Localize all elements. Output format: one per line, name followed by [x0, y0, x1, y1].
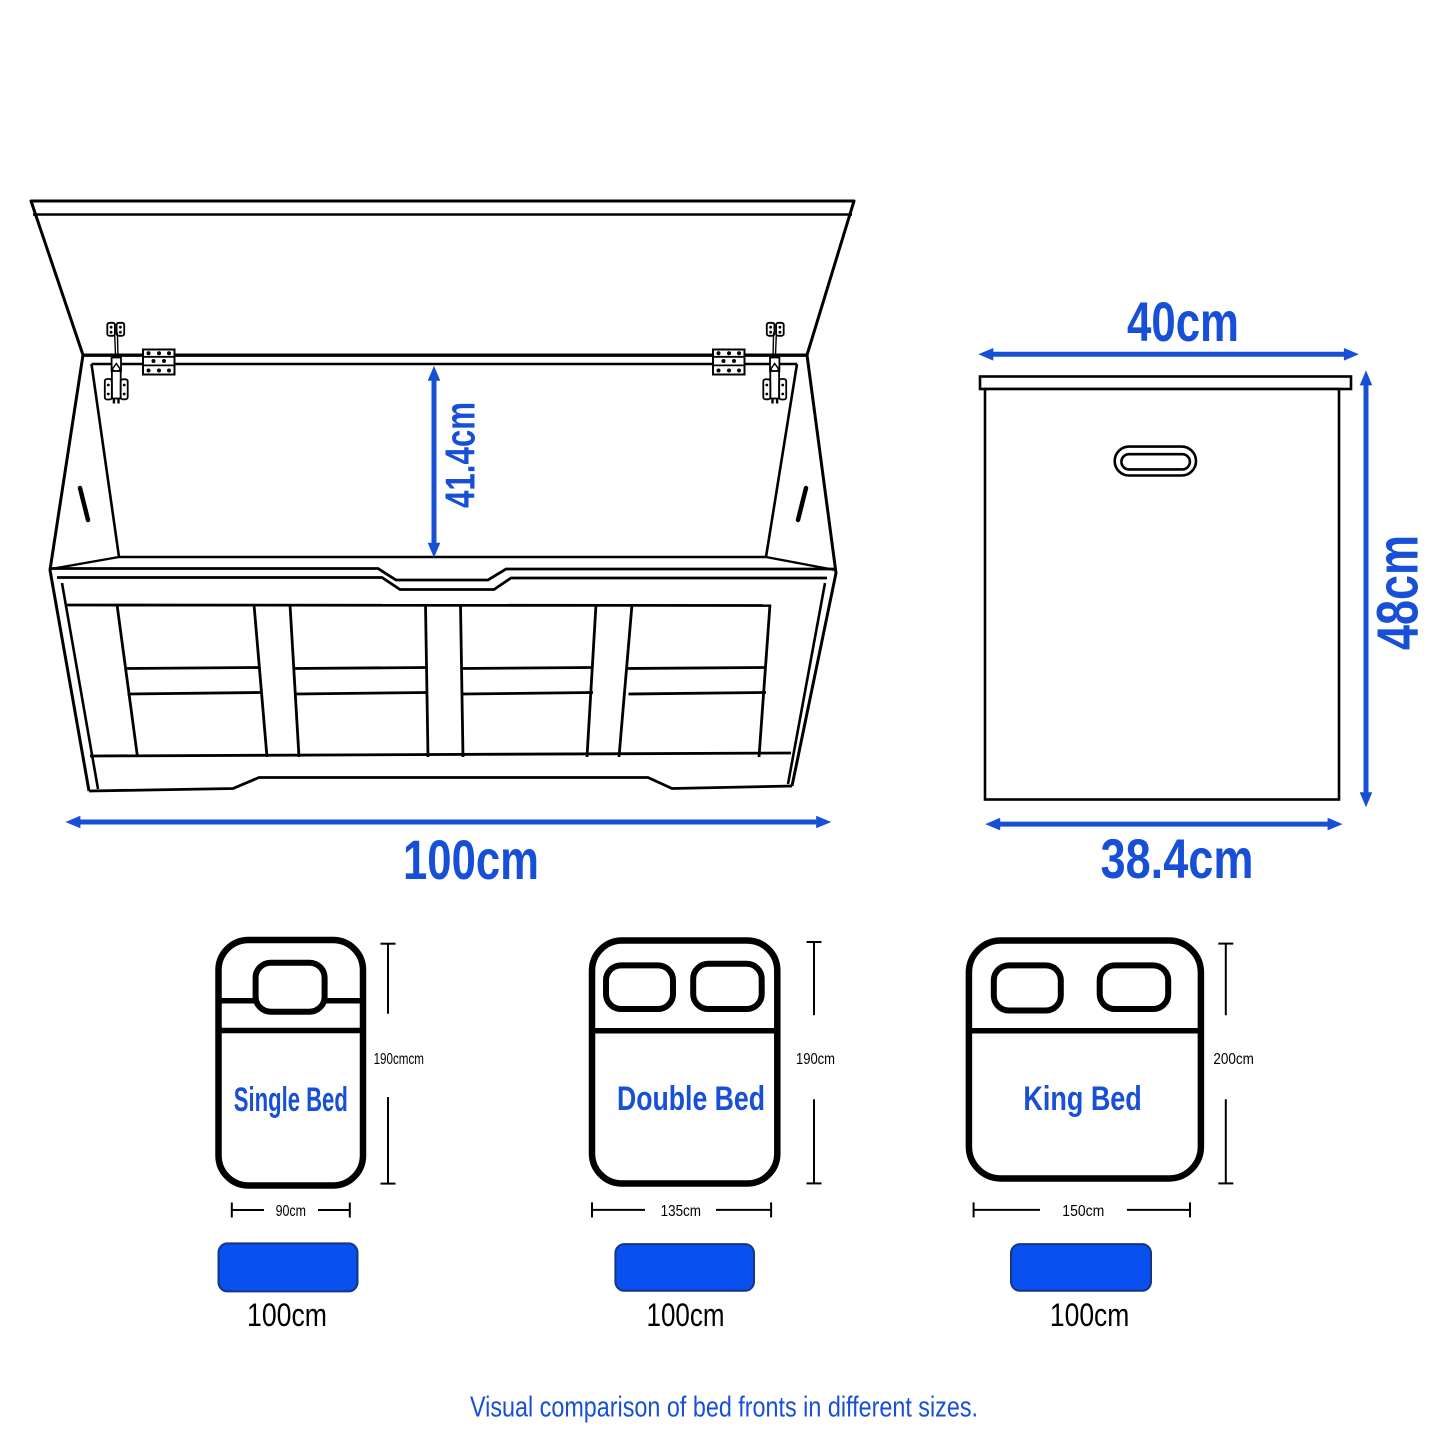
svg-text:150cm: 150cm: [1062, 1203, 1104, 1220]
svg-text:48cm: 48cm: [1366, 535, 1431, 650]
svg-text:190cm: 190cm: [796, 1051, 835, 1068]
svg-text:Single Bed: Single Bed: [234, 1081, 348, 1119]
svg-text:40cm: 40cm: [1127, 290, 1239, 353]
svg-text:100cm: 100cm: [247, 1297, 327, 1333]
svg-text:Visual comparison of bed front: Visual comparison of bed fronts in diffe…: [470, 1392, 978, 1424]
svg-text:100cm: 100cm: [1050, 1297, 1129, 1333]
svg-text:King Bed: King Bed: [1023, 1080, 1141, 1118]
svg-text:38.4cm: 38.4cm: [1101, 827, 1254, 890]
svg-text:100cm: 100cm: [647, 1297, 725, 1333]
svg-text:90cm: 90cm: [276, 1203, 306, 1220]
svg-text:135cm: 135cm: [661, 1203, 701, 1220]
svg-text:Double Bed: Double Bed: [617, 1080, 765, 1118]
svg-text:100cm: 100cm: [403, 828, 539, 891]
svg-text:200cm: 200cm: [1213, 1051, 1254, 1068]
svg-text:41.4cm: 41.4cm: [437, 402, 484, 508]
svg-text:190cmcm: 190cmcm: [374, 1051, 424, 1068]
